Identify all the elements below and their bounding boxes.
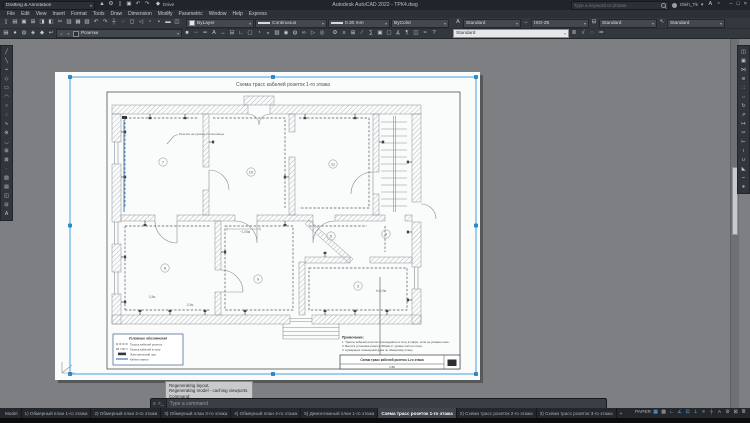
join-icon[interactable]: ∪ <box>739 156 748 164</box>
titlebar-icons: A◔ <box>706 1 722 9</box>
break-icon[interactable]: ≀ <box>739 147 748 155</box>
region-icon[interactable]: ◱ <box>2 192 11 200</box>
layer-freeze-icon[interactable]: ◍ <box>20 30 28 38</box>
rectangle-icon[interactable]: ▭ <box>2 84 11 92</box>
notes: Примечание: 1. Трассы кабелей розеток пр… <box>342 336 450 353</box>
qnew-icon[interactable]: ▯ <box>2 19 10 27</box>
draw-toolbar-vertical: ╱╲┉◇▭◠○◌∿⊜◡⊞⊠∙▨▤◱⊟A <box>0 45 13 221</box>
scale-icon[interactable]: ⇗ <box>739 111 748 119</box>
zoom-previous-icon[interactable]: ◁ <box>137 19 145 27</box>
layout-tabs-bar: Model1) Обмерный план 1-го этажа2) Обмер… <box>0 408 750 418</box>
title-bar: Drafting & Annotation ▾ ▲⚙▯▣↶↷ ◆ Drive A… <box>0 0 750 10</box>
chevron-down-icon: ▾ <box>720 21 722 26</box>
layer-lock-icon[interactable]: ◈ <box>29 30 37 38</box>
floor-plan-svg: Схема трасс кабелей розеток 1-го этажа <box>55 72 480 380</box>
layer-properties-icon[interactable]: ▤ <box>2 30 10 38</box>
array-icon[interactable]: ∷ <box>739 84 748 92</box>
polar-tracking-icon[interactable]: ∠ <box>676 411 683 416</box>
zoom-window-icon[interactable]: ◻ <box>128 19 136 27</box>
room-number: 11 <box>331 162 336 167</box>
minimize-button[interactable]: – <box>729 2 732 8</box>
dynamic-input-icon[interactable]: ┼ <box>708 411 715 416</box>
menu-draw[interactable]: Draw <box>107 11 125 17</box>
measure-icon[interactable]: ∡ <box>394 30 402 38</box>
layer-lock-icon: ◐ <box>66 30 71 38</box>
sheet-set-manager-icon[interactable]: ◫ <box>173 19 181 27</box>
menu-dimension[interactable]: Dimension <box>125 11 155 17</box>
color-control-icon[interactable]: ■ <box>183 30 191 38</box>
svg-text:1:50: 1:50 <box>389 365 395 369</box>
customize-icon[interactable]: ≡ <box>153 401 156 407</box>
rotate-icon[interactable]: ↻ <box>739 102 748 110</box>
table-style-icon[interactable]: ⊟ <box>590 19 598 27</box>
quick-access-toolbar: ▲⚙▯▣↶↷ <box>98 1 151 9</box>
object-snap-icon[interactable]: ⊡ <box>684 411 691 416</box>
menu-express[interactable]: Express <box>246 11 270 17</box>
menu-bar: FileEditViewInsertFormatToolsDrawDimensi… <box>0 10 750 18</box>
menu-tools[interactable]: Tools <box>90 11 108 17</box>
layout-tab-2-схема-трасс-розеток-2-го-этажа[interactable]: 2) Схема трасс розеток 2-го этажа <box>457 408 537 418</box>
revision-cloud-icon[interactable]: ◌ <box>2 111 11 119</box>
layout-tab-model[interactable]: Model <box>2 408 22 418</box>
dim-style-control[interactable]: ISO-25 ▾ <box>531 19 589 28</box>
customization-menu-icon[interactable]: ≣ <box>740 411 747 416</box>
explode-icon[interactable]: ∗ <box>739 183 748 191</box>
trim-icon[interactable]: ✂ <box>739 129 748 137</box>
multiline-text-icon[interactable]: A <box>2 210 11 218</box>
room-number: 10 <box>249 170 254 175</box>
style-search-value: Standard <box>456 31 475 36</box>
menu-edit[interactable]: Edit <box>18 11 33 17</box>
sheet-set-icon[interactable]: ⊞ <box>349 30 357 38</box>
linetype-control[interactable]: Continuous ▾ <box>255 19 327 28</box>
properties-icon[interactable]: ▫ <box>146 19 154 27</box>
status-bar: PAPER▦▩∟∠⊡⊥≡┼A⚙⊠≣ <box>635 411 750 416</box>
notification-icon[interactable]: ◔ <box>714 1 722 9</box>
zoom-realtime-icon[interactable]: ◌ <box>119 19 127 27</box>
make-object-layer-current-icon[interactable]: ◆ <box>38 30 46 38</box>
fillet-icon[interactable]: ⌣ <box>739 174 748 182</box>
hatch-icon[interactable]: ▨ <box>2 174 11 182</box>
steering-wheel-icon[interactable]: ◎ <box>318 30 326 38</box>
svg-text:~1,05м: ~1,05м <box>240 230 250 234</box>
workspace-switching-icon[interactable]: ⚙ <box>724 411 731 416</box>
lineweight-preview <box>331 22 343 24</box>
help-icon[interactable]: ? <box>430 30 438 38</box>
annotation-text: Розетки на уровне столешницы <box>179 132 225 136</box>
properties-tool-icons: ■┄━A↔⊟∟▢◔◒▨◉◍∞▷◎ <box>183 30 326 38</box>
mleader-style-control[interactable]: Standard ▾ <box>667 19 725 28</box>
layout-tab-2-обмерный-план-2-го-этажа[interactable]: 2) Обмерный план 2-го этажа <box>91 408 161 418</box>
table-style-icon[interactable]: ⊟ <box>228 30 236 38</box>
close-button[interactable]: × <box>744 2 747 8</box>
menu-window[interactable]: Window <box>206 11 230 17</box>
layer-tool-icons: ▤●◍◈◆↩ <box>2 30 55 38</box>
windows <box>115 142 419 322</box>
layer-off-icon[interactable]: ● <box>11 30 19 38</box>
erase-icon[interactable]: ◫ <box>739 48 748 56</box>
quick-calc-icon[interactable]: ∑ <box>367 30 375 38</box>
viewports-icon[interactable]: ◫ <box>412 30 420 38</box>
utility-tool-icons: ⚙≡⊞∕∑▣▢∡¶◫≈? <box>331 30 438 38</box>
chevron-down-icon: ▾ <box>322 21 324 26</box>
svg-text:3. Нумерация помещений дана по: 3. Нумерация помещений дана по обмерному… <box>342 348 413 352</box>
lineweight-control[interactable]: 0.30 mm ▾ <box>328 19 390 28</box>
snap-mode-icon[interactable]: ▩ <box>660 411 667 416</box>
lineweight-display-icon[interactable]: ≡ <box>700 411 707 416</box>
new-drawing-icon[interactable]: ▯ <box>116 1 124 9</box>
annotation-visibility-icon[interactable]: A <box>716 411 723 416</box>
make-block-icon[interactable]: ⊠ <box>2 156 11 164</box>
ungroup-icon[interactable]: ▢ <box>385 30 393 38</box>
find-icon[interactable]: ◌ <box>588 30 596 38</box>
workspaces-icon[interactable]: ⚙ <box>331 30 339 38</box>
autocad-window: { "titlebar": { "workspace": "Drafting &… <box>0 0 750 421</box>
text-align-icon[interactable]: ≣ <box>570 30 578 38</box>
ucs-icon <box>62 362 75 373</box>
color-control[interactable]: ByLayer ▾ <box>186 19 254 28</box>
layers-toolbar: ▤●◍◈◆↩ ○ ◐ Розетки ▾ ■┄━A↔⊟∟▢◔◒▨◉◍∞▷◎ ⚙≡… <box>0 29 750 39</box>
show-motion-icon[interactable]: ▷ <box>309 30 317 38</box>
undo-quick-icon[interactable]: ↶ <box>134 1 142 9</box>
annotate-icon[interactable]: ¶ <box>403 30 411 38</box>
window-controls: – □ × <box>729 2 747 8</box>
room-number: 8 <box>164 266 167 271</box>
standard-toolbar-icons: ▯▤▣⊞◨◧✂▥▦▧↶↷┼◌◻◁▫▪▬◫ <box>2 19 181 27</box>
drive-status[interactable]: ◆ Drive <box>154 1 174 9</box>
cut-icon[interactable]: ✂ <box>56 19 64 27</box>
modify-toolbar-vertical: ◫▣⋈≋∷⇔↻⇗↦✂⊢≀∪◣⌣∗ <box>737 45 750 194</box>
tail-tool-icons: ≣√◌≔ <box>570 30 605 38</box>
chevron-down-icon: ▾ <box>177 31 179 36</box>
publish-icon[interactable]: ◧ <box>47 19 55 27</box>
text-style-icon[interactable]: A <box>210 30 218 38</box>
match-properties-icon[interactable]: ▧ <box>83 19 91 27</box>
menu-modify[interactable]: Modify <box>155 11 176 17</box>
drawing-title: Схема трасс кабелей розеток 1-го этажа <box>236 81 330 88</box>
doors <box>155 114 436 292</box>
autodesk-account-icon[interactable]: A <box>706 1 714 9</box>
workspace-label: Drafting & Annotation <box>6 3 51 8</box>
dimension-style-icon[interactable]: ↔ <box>219 30 227 38</box>
gear-icon[interactable]: ⚙ <box>107 1 115 9</box>
stretch-icon[interactable]: ↦ <box>739 120 748 128</box>
staircase <box>381 116 407 212</box>
standard-toolbar: ▯▤▣⊞◨◧✂▥▦▧↶↷┼◌◻◁▫▪▬◫ ByLayer ▾ Continuou… <box>0 18 750 29</box>
layout-tab-1-обмерный-план-1-го-этажа[interactable]: 1) Обмерный план 1-го этажа <box>22 408 92 418</box>
command-line[interactable]: ≡ >_ Type a command <box>150 398 607 408</box>
room-number: 3 <box>357 284 360 289</box>
style-search-combo[interactable]: Standard ▾ <box>453 29 569 38</box>
markup-icon[interactable]: ∕ <box>358 30 366 38</box>
copy-clip-icon[interactable]: ▥ <box>65 19 73 27</box>
chevron-down-icon: ▾ <box>652 21 654 26</box>
layout-tabs: Model1) Обмерный план 1-го этажа2) Обмер… <box>2 408 625 418</box>
3d-orbit-icon[interactable]: ◔ <box>255 30 263 38</box>
save-icon[interactable]: ▣ <box>20 19 28 27</box>
table-style-control[interactable]: Standard ▾ <box>599 19 657 28</box>
design-center-icon[interactable]: ▪ <box>155 19 163 27</box>
copy-icon[interactable]: ▣ <box>739 57 748 65</box>
svg-text:Электрический щит: Электрический щит <box>130 352 157 356</box>
chevron-down-icon: ▾ <box>444 21 446 26</box>
layout-tab-3-схема-трасс-розеток-3-го-этажа[interactable]: 3) Схема трасс розеток 3-го этажа <box>537 408 617 418</box>
chevron-down-icon: ▾ <box>249 21 251 26</box>
table-icon[interactable]: ⊟ <box>2 201 11 209</box>
menu-format[interactable]: Format <box>68 11 90 17</box>
ellipse-icon[interactable]: ⊜ <box>2 129 11 137</box>
drawing-area[interactable]: ╱╲┉◇▭◠○◌∿⊜◡⊞⊠∙▨▤◱⊟A ◫▣⋈≋∷⇔↻⇗↦✂⊢≀∪◣⌣∗ Схе… <box>0 39 750 408</box>
svg-text:Трасса кабелей розеток: Трасса кабелей розеток <box>130 342 163 346</box>
svg-text:Условные обозначения: Условные обозначения <box>129 337 167 341</box>
plot-preview-icon[interactable]: ◨ <box>38 19 46 27</box>
linetype-value: Continuous <box>272 21 296 26</box>
menu-view[interactable]: View <box>33 11 50 17</box>
dimension-labels: 0,3м 0,3м h=0,9м ~1,05м <box>149 228 386 308</box>
user-avatar[interactable] <box>672 3 677 8</box>
application-menu-icon[interactable]: ▲ <box>98 1 106 9</box>
open-icon[interactable]: ▤ <box>11 19 19 27</box>
linetype-control-icon[interactable]: ┄ <box>192 30 200 38</box>
mleader-style-icon[interactable]: ↖ <box>658 19 666 27</box>
layer-color-swatch <box>73 31 79 37</box>
circle-icon[interactable]: ○ <box>2 102 11 110</box>
text-style-control[interactable]: Standard ▾ <box>463 19 521 28</box>
chevron-down-icon: ▾ <box>564 31 566 36</box>
room-number: 9 <box>257 277 260 282</box>
tool-palettes-icon[interactable]: ▬ <box>164 19 172 27</box>
spline-icon[interactable]: ∿ <box>2 120 11 128</box>
layout-tab-5-демонтажный-план-1-го-этажа[interactable]: 5) Демонтажный план 1-го этажа <box>301 408 378 418</box>
menu-parametric[interactable]: Parametric <box>176 11 206 17</box>
outlet-symbols <box>121 114 412 315</box>
mleader-style-value: Standard <box>670 21 689 26</box>
move-icon[interactable]: ⇔ <box>739 93 748 101</box>
electrical-panel-symbol <box>122 116 127 119</box>
point-icon[interactable]: ∙ <box>2 165 11 173</box>
cloud-drive-icon: ◆ <box>154 1 162 9</box>
command-prompt-icon: >_ <box>158 401 164 407</box>
polyline-icon[interactable]: ┉ <box>2 66 11 74</box>
walls <box>112 96 421 324</box>
polygon-icon[interactable]: ◇ <box>2 75 11 83</box>
ellipse-arc-icon[interactable]: ◡ <box>2 138 11 146</box>
table-style-value: Standard <box>602 21 621 26</box>
titlebar-right: Oleh_Tk ▾ A◔ – □ × <box>571 1 747 10</box>
save-quick-icon[interactable]: ▣ <box>125 1 133 9</box>
layout-tab-+[interactable]: + <box>617 408 626 418</box>
properties-palette-icon[interactable]: ≡ <box>340 30 348 38</box>
chevron-down-icon: ▾ <box>516 21 518 26</box>
walk-fly-icon[interactable]: ∞ <box>300 30 308 38</box>
materials-icon[interactable]: ▨ <box>273 30 281 38</box>
redo-quick-icon[interactable]: ↷ <box>143 1 151 9</box>
title-block: Схема трасс кабелей розеток 1-го этажа 1… <box>340 355 460 369</box>
ortho-mode-icon[interactable]: ∟ <box>668 411 675 416</box>
plot-icon[interactable]: ⊞ <box>29 19 37 27</box>
room-number: 4 <box>385 232 388 237</box>
ucs-icon[interactable]: ∟ <box>237 30 245 38</box>
arc-icon[interactable]: ◠ <box>2 93 11 101</box>
extend-icon[interactable]: ⊢ <box>739 138 748 146</box>
pan-icon[interactable]: ┼ <box>110 19 118 27</box>
chevron-down-icon: ▾ <box>90 3 92 8</box>
text-style-icon[interactable]: A <box>454 19 462 27</box>
dim-style-value: ISO-25 <box>534 21 549 26</box>
cable-routes <box>125 118 407 310</box>
svg-text:Кабель-канал: Кабель-канал <box>130 357 149 361</box>
linetype-preview <box>258 22 270 24</box>
lights-icon[interactable]: ◉ <box>282 30 290 38</box>
clean-screen-icon[interactable]: ⊠ <box>732 411 739 416</box>
svg-text:h=0,9м: h=0,9м <box>376 289 386 293</box>
menu-insert[interactable]: Insert <box>49 11 68 17</box>
view-manager-icon[interactable]: ≈ <box>421 30 429 38</box>
dim-style-icon[interactable]: ↔ <box>522 19 530 27</box>
grid-display-icon[interactable]: ▦ <box>652 411 659 416</box>
search-icon[interactable] <box>661 3 666 8</box>
construction-line-icon[interactable]: ╲ <box>2 57 11 65</box>
plotstyle-control[interactable]: ByColor ▾ <box>391 19 449 28</box>
spell-check-icon[interactable]: √ <box>579 30 587 38</box>
color-value: ByLayer <box>197 21 215 26</box>
workspace-selector[interactable]: Drafting & Annotation ▾ <box>3 1 95 10</box>
insert-block-icon[interactable]: ⊞ <box>2 147 11 155</box>
svg-text:Схема трасс кабелей розеток 1-: Схема трасс кабелей розеток 1-го этажа <box>360 358 423 362</box>
svg-text:Примечание:: Примечание: <box>342 336 364 340</box>
layout-tab-схема-трасс-розеток-1-го-этажа[interactable]: Схема трасс розеток 1-го этажа <box>378 408 456 418</box>
undo-icon[interactable]: ↶ <box>92 19 100 27</box>
drive-label: Drive <box>163 3 174 8</box>
legend: Условные обозначения Трасса кабелей розе… <box>113 334 183 365</box>
options-icon[interactable]: ≔ <box>597 30 605 38</box>
paper-space-icon[interactable]: PAPER <box>635 411 651 416</box>
object-snap-tracking-icon[interactable]: ⊥ <box>692 411 699 416</box>
mirror-icon[interactable]: ⋈ <box>739 66 748 74</box>
command-input[interactable]: Type a command <box>167 401 208 407</box>
offset-icon[interactable]: ≋ <box>739 75 748 83</box>
stamp-logo <box>448 360 457 367</box>
layer-previous-icon[interactable]: ↩ <box>47 30 55 38</box>
text-style-value: Standard <box>466 21 485 26</box>
search-input[interactable] <box>574 3 659 8</box>
layout-tab-4-обмерный-план-4-го-этажа[interactable]: 4) Обмерный план 4-го этажа <box>231 408 301 418</box>
room-number: 7 <box>162 160 165 165</box>
chamfer-icon[interactable]: ◣ <box>739 165 748 173</box>
named-views-icon[interactable]: ▢ <box>246 30 254 38</box>
layer-control[interactable]: ○ ◐ Розетки ▾ <box>56 29 182 38</box>
user-chevron-icon[interactable]: ▾ <box>701 2 704 8</box>
history-line: Regenerating model - caching viewports. <box>169 388 249 393</box>
paste-icon[interactable]: ▦ <box>74 19 82 27</box>
room-number: 5 <box>330 234 333 239</box>
color-swatch <box>189 20 195 26</box>
leader-line <box>167 135 178 145</box>
sun-status-icon[interactable]: ◍ <box>291 30 299 38</box>
lineweight-control-icon[interactable]: ━ <box>201 30 209 38</box>
porch-steps <box>283 324 339 339</box>
maximize-button[interactable]: □ <box>736 2 739 8</box>
group-icon[interactable]: ▣ <box>376 30 384 38</box>
menu-help[interactable]: Help <box>230 11 246 17</box>
line-icon[interactable]: ╱ <box>2 48 11 56</box>
room-numbers: 7101154893 <box>159 158 390 290</box>
chevron-down-icon: ▾ <box>385 21 387 26</box>
help-search <box>571 1 669 10</box>
layout-paper-sheet[interactable]: Схема трасс кабелей розеток 1-го этажа <box>55 72 480 380</box>
command-line-icons: ≡ >_ <box>151 399 167 408</box>
layout-tab-3-обмерный-план-3-го-этажа[interactable]: 3) Обмерный план 3-го этажа <box>161 408 231 418</box>
gradient-icon[interactable]: ▤ <box>2 183 11 191</box>
svg-text:0,3м: 0,3м <box>149 295 156 299</box>
layer-on-icon: ○ <box>59 30 64 38</box>
svg-text:Трасса кабелей в полу: Трасса кабелей в полу <box>130 347 161 351</box>
menu-file[interactable]: File <box>4 11 18 17</box>
chevron-down-icon: ▾ <box>584 21 586 26</box>
plotstyle-value: ByColor <box>394 21 411 26</box>
layer-name: Розетки <box>81 31 98 36</box>
lineweight-value: 0.30 mm <box>345 21 364 26</box>
render-icon[interactable]: ◒ <box>264 30 272 38</box>
username-label[interactable]: Oleh_Tk <box>680 3 698 8</box>
svg-text:0,3м: 0,3м <box>187 303 194 307</box>
redo-icon[interactable]: ↷ <box>101 19 109 27</box>
